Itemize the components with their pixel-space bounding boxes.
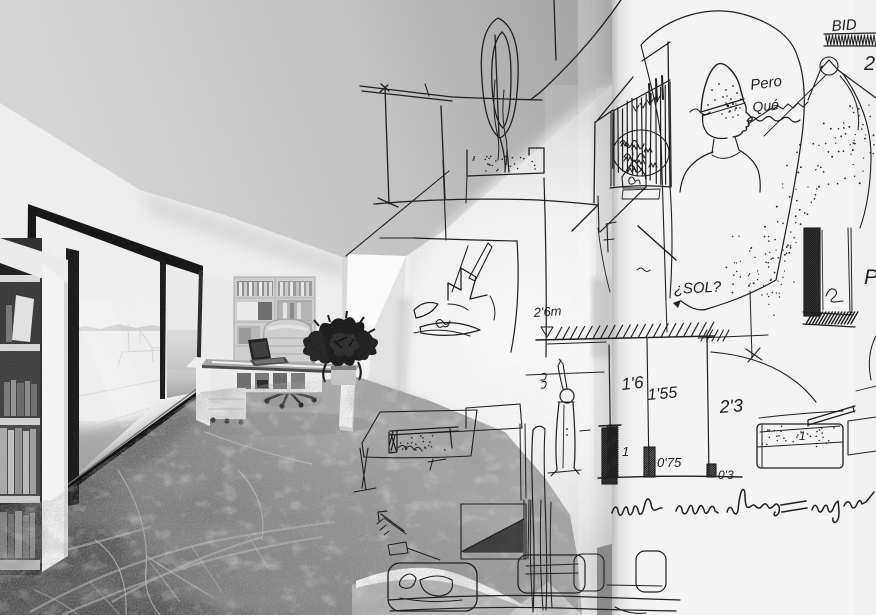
svg-text:2'6m: 2'6m <box>532 303 562 320</box>
svg-text:0'75: 0'75 <box>657 455 682 470</box>
svg-text:2: 2 <box>863 53 875 75</box>
svg-text:1: 1 <box>622 444 629 459</box>
svg-text:¿SOL?: ¿SOL? <box>673 278 722 297</box>
svg-text:P: P <box>864 266 876 289</box>
svg-text:2'3: 2'3 <box>718 395 744 417</box>
svg-text:1: 1 <box>799 429 806 443</box>
svg-text:BID: BID <box>831 16 857 35</box>
svg-text:1'55: 1'55 <box>647 384 678 404</box>
svg-text:1'6: 1'6 <box>620 373 645 394</box>
svg-text:0'3: 0'3 <box>718 468 734 482</box>
